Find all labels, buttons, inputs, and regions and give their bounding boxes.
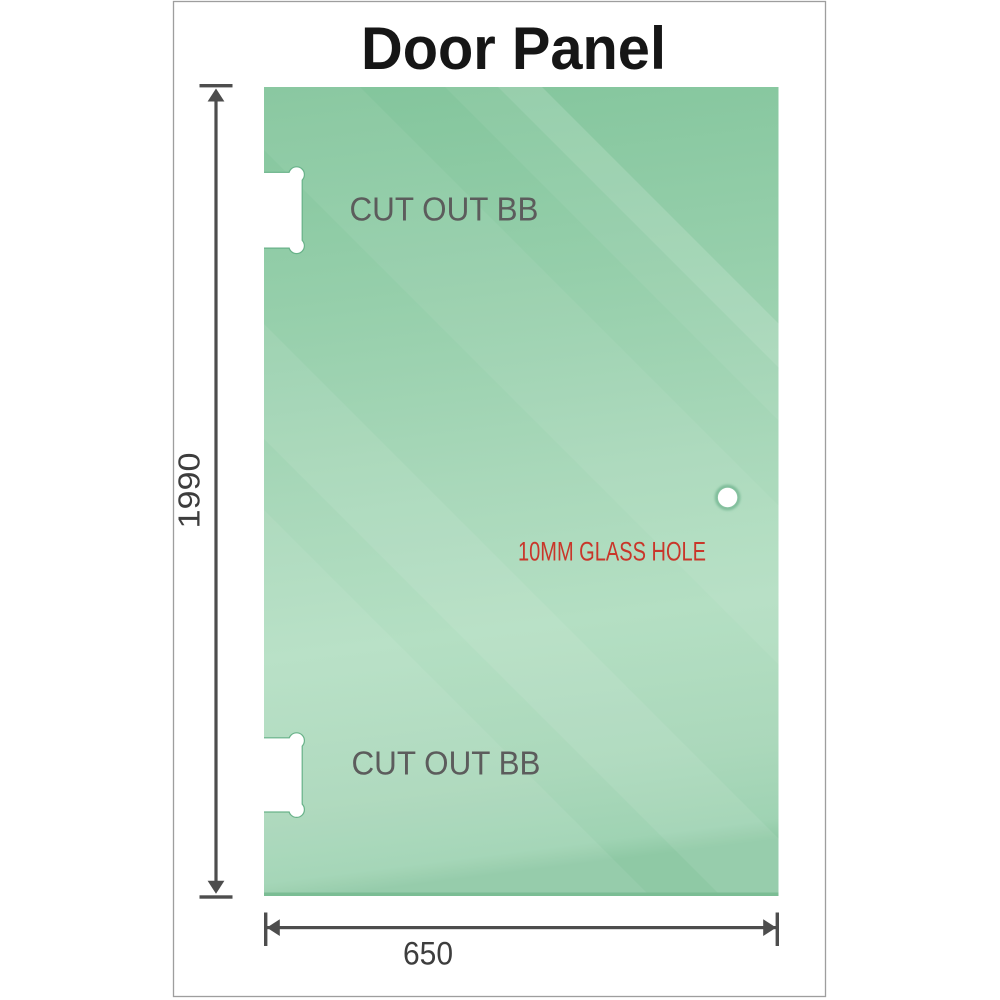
svg-text:CUT OUT BB: CUT OUT BB (350, 191, 539, 228)
svg-text:CUT OUT BB: CUT OUT BB (352, 745, 541, 782)
svg-text:650: 650 (403, 936, 453, 972)
svg-text:10MM GLASS HOLE: 10MM GLASS HOLE (518, 537, 706, 567)
svg-text:1990: 1990 (172, 453, 207, 529)
svg-text:Door Panel: Door Panel (361, 15, 666, 82)
